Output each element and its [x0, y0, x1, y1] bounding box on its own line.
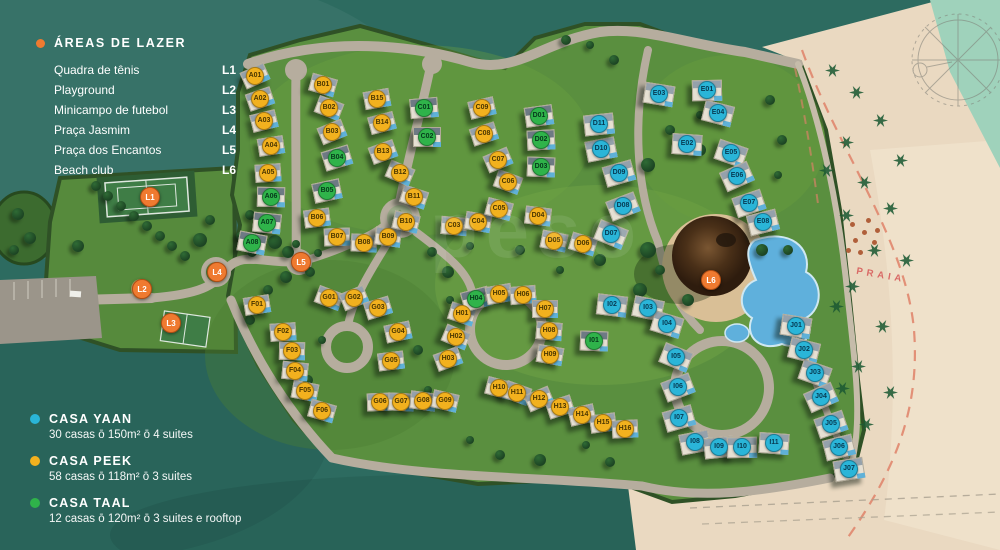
leisure-item-code: L4 — [222, 123, 236, 137]
house-type-desc: 58 casas ō 118m² ō 3 suites — [49, 471, 241, 483]
yaan-dot-icon — [30, 414, 40, 424]
masterplan-map: A01A02A03A04A05A06A07A08B01B02B03B04B05B… — [0, 0, 1000, 550]
leisure-item-label: Quadra de tênis — [54, 63, 139, 77]
leisure-item-code: L2 — [222, 83, 236, 97]
houses-legend: CASA YAAN30 casas ō 150m² ō 4 suitesCASA… — [30, 412, 241, 538]
leisure-legend-title: ÁREAS DE LAZER — [54, 36, 186, 50]
house-type-desc: 30 casas ō 150m² ō 4 suites — [49, 429, 241, 441]
peek-dot-icon — [30, 456, 40, 466]
leisure-legend-item: PlaygroundL2 — [54, 83, 236, 97]
house-type-legend-yaan: CASA YAAN30 casas ō 150m² ō 4 suites — [30, 412, 241, 441]
leisure-legend-dot-icon — [36, 39, 45, 48]
house-type-desc: 12 casas ō 120m² ō 3 suites e rooftop — [49, 513, 241, 525]
taal-dot-icon — [30, 498, 40, 508]
house-type-legend-peek: CASA PEEK58 casas ō 118m² ō 3 suites — [30, 454, 241, 483]
leisure-item-code: L3 — [222, 103, 236, 117]
leisure-item-label: Praça dos Encantos — [54, 143, 161, 157]
house-type-name: CASA PEEK — [49, 454, 132, 468]
leisure-item-label: Beach club — [54, 163, 113, 177]
leisure-item-code: L1 — [222, 63, 236, 77]
leisure-legend-item: Praça dos EncantosL5 — [54, 143, 236, 157]
leisure-legend-item: Minicampo de futebolL3 — [54, 103, 236, 117]
leisure-item-code: L5 — [222, 143, 236, 157]
leisure-legend-item: Praça JasmimL4 — [54, 123, 236, 137]
house-type-name: CASA TAAL — [49, 496, 131, 510]
leisure-legend-item: Quadra de tênisL1 — [54, 63, 236, 77]
house-type-name: CASA YAAN — [49, 412, 132, 426]
leisure-item-label: Praça Jasmim — [54, 123, 130, 137]
leisure-item-label: Playground — [54, 83, 115, 97]
leisure-legend-item: Beach clubL6 — [54, 163, 236, 177]
leisure-item-code: L6 — [222, 163, 236, 177]
leisure-legend: ÁREAS DE LAZER Quadra de tênisL1Playgrou… — [36, 36, 246, 183]
house-type-legend-taal: CASA TAAL12 casas ō 120m² ō 3 suites e r… — [30, 496, 241, 525]
lazer-items: Quadra de tênisL1PlaygroundL2Minicampo d… — [54, 63, 246, 177]
leisure-item-label: Minicampo de futebol — [54, 103, 168, 117]
